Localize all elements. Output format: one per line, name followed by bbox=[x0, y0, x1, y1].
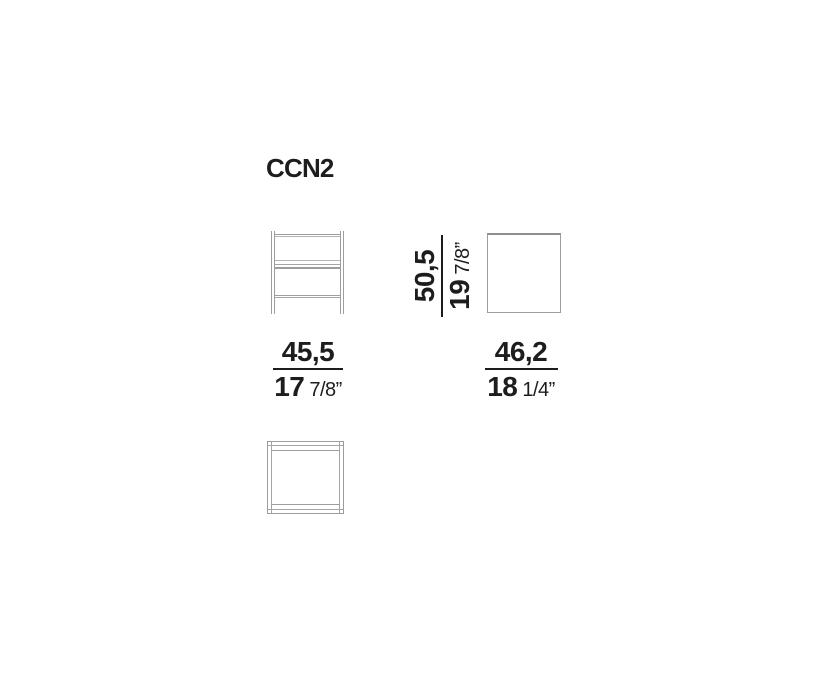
top-view-drawing bbox=[267, 441, 344, 514]
front-shelf bbox=[275, 260, 340, 269]
dimension-height-inches: 197/8” bbox=[446, 228, 477, 324]
spec-sheet-page: CCN2 50,5 197/8” 45,5 177/8” 46,2 181/4” bbox=[0, 0, 840, 679]
dimension-depth-inch-fraction: 1/4” bbox=[522, 379, 554, 401]
top-view-left-edge-line bbox=[271, 442, 272, 513]
dimension-depth: 46,2 181/4” bbox=[471, 338, 571, 404]
top-view-right-edge-line bbox=[339, 442, 340, 513]
dimension-height: 50,5 197/8” bbox=[408, 228, 480, 324]
top-view-top-rail-line bbox=[271, 450, 340, 451]
dimension-height-cm: 50,5 bbox=[411, 228, 439, 324]
dimension-depth-divider bbox=[485, 368, 558, 370]
front-right-leg bbox=[340, 231, 344, 314]
dimension-width-cm: 45,5 bbox=[258, 338, 358, 366]
dimension-width: 45,5 177/8” bbox=[258, 338, 358, 404]
dimension-width-inch-whole: 17 bbox=[274, 371, 304, 402]
dimension-width-inch-fraction: 7/8” bbox=[309, 379, 341, 401]
dimension-depth-cm: 46,2 bbox=[471, 338, 571, 366]
front-bottom-rail bbox=[275, 295, 340, 298]
dimension-height-divider bbox=[441, 235, 443, 317]
top-view-bottom-rail-line bbox=[271, 504, 340, 505]
top-view-bottom-edge-line bbox=[268, 509, 343, 510]
front-shelf-edge-line bbox=[275, 264, 340, 265]
dimension-depth-inches: 181/4” bbox=[471, 373, 571, 404]
front-view-drawing bbox=[271, 231, 344, 314]
top-view-top-edge-line bbox=[268, 445, 343, 446]
dimension-depth-inch-whole: 18 bbox=[487, 371, 517, 402]
side-view-drawing bbox=[487, 233, 561, 313]
dimension-height-inch-fraction: 7/8” bbox=[452, 242, 474, 274]
dimension-width-divider bbox=[273, 368, 343, 370]
dimension-width-inches: 177/8” bbox=[258, 373, 358, 404]
front-left-leg bbox=[271, 231, 275, 314]
dimension-height-inch-whole: 19 bbox=[444, 280, 475, 310]
product-code-title: CCN2 bbox=[266, 155, 334, 181]
front-top-rail bbox=[275, 234, 340, 237]
